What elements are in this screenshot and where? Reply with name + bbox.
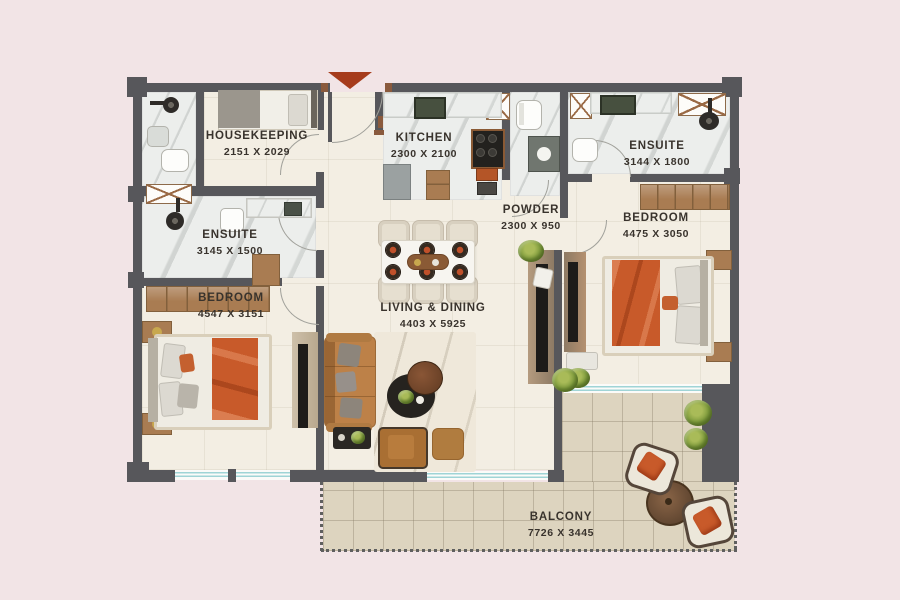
wall-segment <box>196 92 204 186</box>
plant-icon <box>351 431 365 444</box>
throw-blanket <box>177 383 199 409</box>
bench <box>566 352 598 370</box>
kitchen-cabinet <box>383 164 411 200</box>
room-dims: 3144 X 1800 <box>624 155 690 169</box>
wall-segment <box>630 174 730 182</box>
table-runner <box>407 254 449 270</box>
plant-icon <box>684 428 708 450</box>
entry-arrow-icon <box>328 72 372 89</box>
place-setting <box>386 243 400 257</box>
plant-icon <box>518 240 544 262</box>
balcony-dashed-edge-right <box>734 482 737 549</box>
room-dims: 2300 X 950 <box>501 219 561 233</box>
door-jamb <box>374 130 384 135</box>
room-label-kitchen: KITCHEN 2300 X 2100 <box>391 131 457 161</box>
room-dims: 4547 X 3151 <box>198 307 264 321</box>
dish <box>432 259 439 266</box>
accent-pillow <box>662 296 678 310</box>
wall-segment <box>548 470 564 482</box>
room-name: LIVING & DINING <box>380 301 485 317</box>
room-dims: 2151 X 2029 <box>206 145 308 159</box>
pillow <box>288 94 308 126</box>
bed-blanket <box>612 260 660 346</box>
room-name: POWDER <box>501 203 561 219</box>
window-mullion <box>228 469 236 482</box>
ottoman <box>432 428 464 460</box>
shower-head-icon <box>699 112 719 130</box>
shaft-xbox <box>678 93 726 116</box>
chair-cushion <box>635 450 667 482</box>
decor-bowl <box>416 396 424 404</box>
vanity-sink-icon <box>284 202 302 216</box>
wall-cap <box>724 168 740 184</box>
table-center <box>665 498 672 505</box>
room-dims: 2300 X 2100 <box>391 147 457 161</box>
accent-pillow <box>179 353 195 373</box>
shower-arm-icon <box>176 198 180 212</box>
toilet-icon <box>516 100 542 130</box>
armchair-seat <box>388 435 414 459</box>
vanity-sink-icon <box>600 95 636 115</box>
burner <box>476 148 485 157</box>
pillow <box>675 305 704 345</box>
wall-cap <box>128 272 144 288</box>
room-label-bedroom-left: BEDROOM 4547 X 3151 <box>198 291 264 321</box>
bed-headboard <box>148 338 158 422</box>
plant-icon <box>552 368 578 392</box>
room-label-living-dining: LIVING & DINING 4403 X 5925 <box>380 301 485 331</box>
bath-cabinet <box>252 254 280 286</box>
armchair <box>378 427 428 469</box>
room-name: KITCHEN <box>391 131 457 147</box>
wall-block <box>702 384 739 482</box>
room-label-powder: POWDER 2300 X 950 <box>501 203 561 233</box>
room-label-balcony: BALCONY 7726 X 3445 <box>528 510 594 540</box>
place-setting <box>453 265 467 279</box>
kitchen-sink-icon <box>414 97 446 119</box>
tv-icon <box>568 262 578 342</box>
kitchen-accessory <box>477 182 497 195</box>
kitchen-wood-unit <box>426 170 450 200</box>
wall-cap <box>127 462 149 482</box>
wardrobe <box>640 184 730 210</box>
plant-icon <box>398 390 414 404</box>
window-living <box>427 471 548 480</box>
sink-icon <box>147 126 169 147</box>
wall-segment <box>316 250 324 278</box>
floor-tray <box>333 427 371 449</box>
room-label-housekeeping: HOUSEKEEPING 2151 X 2029 <box>206 129 308 159</box>
wall-cap <box>127 77 147 97</box>
closet-xbox <box>146 184 192 204</box>
side-table <box>407 361 443 395</box>
sofa-armrest <box>326 333 372 342</box>
kitchen-accessory <box>476 168 498 181</box>
tv-icon <box>298 344 308 428</box>
dish <box>414 259 421 266</box>
door-jamb <box>321 83 328 92</box>
toilet-icon <box>161 149 189 172</box>
wall-segment <box>560 92 568 218</box>
room-name: ENSUITE <box>624 139 690 155</box>
room-name: ENSUITE <box>197 228 263 244</box>
door-jamb <box>385 83 392 92</box>
vanity-counter <box>246 198 312 218</box>
room-dims: 4475 X 3050 <box>623 227 689 241</box>
sofa-cushion <box>335 371 357 393</box>
room-dims: 7726 X 3445 <box>528 526 594 540</box>
room-label-ensuite-right: ENSUITE 3144 X 1800 <box>624 139 690 169</box>
sofa-cushion <box>339 397 363 419</box>
room-name: BEDROOM <box>623 211 689 227</box>
shower-head-icon <box>163 97 179 113</box>
stove-icon <box>471 129 505 169</box>
sofa-cushion <box>337 343 362 368</box>
burner <box>476 134 485 143</box>
room-name: BEDROOM <box>198 291 264 307</box>
bed-blanket <box>212 338 258 420</box>
wall-segment <box>554 250 562 470</box>
balcony-dashed-edge-left <box>320 482 323 551</box>
balcony-dashed-edge-bottom <box>321 549 737 552</box>
bed-headboard <box>700 260 708 346</box>
place-setting <box>453 243 467 257</box>
wall-segment <box>316 172 324 208</box>
burner <box>488 148 497 157</box>
room-name: BALCONY <box>528 510 594 526</box>
shower-head-icon <box>166 212 184 230</box>
room-dims: 3145 X 1500 <box>197 244 263 258</box>
chair-cushion <box>691 505 722 536</box>
decor-bowl <box>338 434 345 441</box>
powder-vanity <box>528 136 560 172</box>
plant-icon <box>684 400 712 426</box>
wall-cap <box>128 186 144 202</box>
wall-segment <box>385 83 739 92</box>
wall-segment <box>568 174 592 182</box>
floor-plan-canvas: HOUSEKEEPING 2151 X 2029 KITCHEN 2300 X … <box>0 0 900 600</box>
room-dims: 4403 X 5925 <box>380 317 485 331</box>
housekeeping-headboard <box>311 90 317 128</box>
room-label-ensuite-left: ENSUITE 3145 X 1500 <box>197 228 263 258</box>
housekeeping-bed-blanket <box>218 90 260 128</box>
place-setting <box>386 265 400 279</box>
room-label-bedroom-right: BEDROOM 4475 X 3050 <box>623 211 689 241</box>
toilet-tank <box>519 103 524 125</box>
vanity-basin <box>537 147 551 161</box>
room-name: HOUSEKEEPING <box>206 129 308 145</box>
toilet-icon <box>572 138 598 162</box>
shaft-xbox <box>570 93 592 119</box>
burner <box>488 134 497 143</box>
